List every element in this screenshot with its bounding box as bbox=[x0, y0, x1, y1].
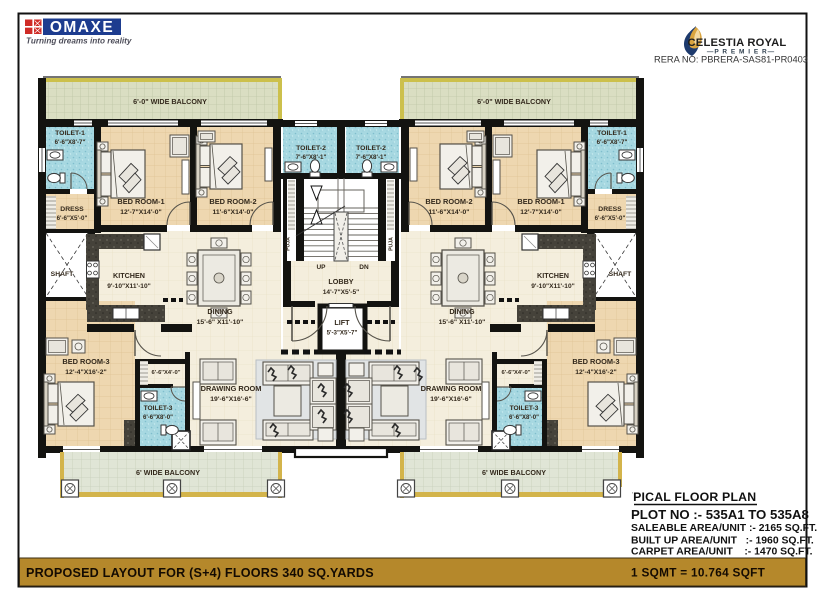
svg-text:BED ROOM-3: BED ROOM-3 bbox=[572, 357, 619, 366]
svg-text:TYPICAL FLOOR PLAN: TYPICAL FLOOR PLAN bbox=[617, 490, 756, 504]
svg-text:6'-6"X8'-0": 6'-6"X8'-0" bbox=[143, 415, 173, 421]
svg-text:TOILET-1: TOILET-1 bbox=[55, 130, 85, 137]
svg-text:TOILET-2: TOILET-2 bbox=[356, 145, 386, 152]
svg-text:BED ROOM-3: BED ROOM-3 bbox=[62, 357, 109, 366]
svg-text:14'-7"X5'-5": 14'-7"X5'-5" bbox=[323, 289, 360, 296]
svg-text:BED ROOM-2: BED ROOM-2 bbox=[209, 197, 256, 206]
svg-text:PUJA: PUJA bbox=[389, 237, 395, 251]
svg-text:7'-6"X8'-1": 7'-6"X8'-1" bbox=[356, 154, 387, 161]
svg-text:12'-4"X16'-2": 12'-4"X16'-2" bbox=[575, 369, 616, 376]
svg-text:TOILET-3: TOILET-3 bbox=[510, 405, 539, 412]
svg-text:DINING: DINING bbox=[449, 307, 475, 316]
svg-text:CARPET AREA/UNIT :- 1470 SQ: CARPET AREA/UNIT :- 1470 SQ.FT. bbox=[631, 547, 813, 558]
svg-text:LOBBY: LOBBY bbox=[328, 277, 353, 286]
svg-text:TOILET-2: TOILET-2 bbox=[296, 145, 326, 152]
svg-text:PLOT NO :- 535A1 TO 535A8: PLOT NO :- 535A1 TO 535A8 bbox=[631, 507, 809, 522]
svg-text:6'-6''X4'-0'': 6'-6''X4'-0'' bbox=[502, 370, 532, 376]
svg-text:OMAXE: OMAXE bbox=[50, 19, 114, 36]
svg-text:11'-6"X14'-0": 11'-6"X14'-0" bbox=[428, 209, 469, 216]
svg-text:BED ROOM-1: BED ROOM-1 bbox=[517, 197, 564, 206]
svg-text:12'-7"X14'-0": 12'-7"X14'-0" bbox=[520, 209, 561, 216]
svg-text:DRESS: DRESS bbox=[60, 206, 84, 213]
svg-text:SHAFT: SHAFT bbox=[609, 271, 633, 278]
svg-text:RERA NO: PBRERA-SAS81-PR0403: RERA NO: PBRERA-SAS81-PR0403 bbox=[654, 55, 808, 65]
svg-text:SALEABLE AREA/UNIT :- 2165 SQ.: SALEABLE AREA/UNIT :- 2165 SQ.FT. bbox=[631, 523, 817, 534]
svg-text:DRESS: DRESS bbox=[598, 206, 622, 213]
svg-text:BUILT UP AREA/UNIT :- 1960 S: BUILT UP AREA/UNIT :- 1960 SQ.FT. bbox=[631, 536, 814, 547]
svg-text:PROPOSED LAYOUT FOR (S+4) FLOO: PROPOSED LAYOUT FOR (S+4) FLOORS 340 SQ.… bbox=[26, 566, 374, 580]
svg-text:9'-10"X11'-10": 9'-10"X11'-10" bbox=[531, 283, 574, 290]
svg-text:BED ROOM-1: BED ROOM-1 bbox=[117, 197, 164, 206]
svg-text:5'-3"X5'-7": 5'-3"X5'-7" bbox=[327, 330, 358, 337]
svg-text:DRAWING ROOM: DRAWING ROOM bbox=[201, 384, 262, 393]
svg-text:6' WIDE BALCONY: 6' WIDE BALCONY bbox=[482, 468, 546, 477]
svg-text:6'-0" WIDE BALCONY: 6'-0" WIDE BALCONY bbox=[477, 97, 551, 106]
svg-text:6'-6"X5'-0": 6'-6"X5'-0" bbox=[595, 215, 626, 222]
svg-text:Turning dreams into reality: Turning dreams into reality bbox=[26, 37, 132, 46]
svg-text:19'-6"X16'-6": 19'-6"X16'-6" bbox=[210, 396, 251, 403]
svg-text:6'-6"X8'-7": 6'-6"X8'-7" bbox=[55, 139, 86, 146]
svg-text:7'-6"X8'-1": 7'-6"X8'-1" bbox=[296, 154, 327, 161]
svg-text:11'-6"X14'-0": 11'-6"X14'-0" bbox=[212, 209, 253, 216]
svg-text:6'-6"X8'-0": 6'-6"X8'-0" bbox=[509, 415, 539, 421]
svg-text:DN: DN bbox=[359, 264, 369, 271]
svg-text:6'-6"X5'-0": 6'-6"X5'-0" bbox=[57, 215, 88, 222]
svg-text:SHAFT: SHAFT bbox=[51, 271, 75, 278]
svg-text:UP: UP bbox=[316, 264, 326, 271]
svg-text:LIFT: LIFT bbox=[334, 318, 350, 327]
svg-text:6'-6''X4'-0'': 6'-6''X4'-0'' bbox=[152, 370, 182, 376]
svg-text:KITCHEN: KITCHEN bbox=[113, 271, 145, 280]
svg-text:BED ROOM-2: BED ROOM-2 bbox=[425, 197, 472, 206]
svg-text:12'-7"X14'-0": 12'-7"X14'-0" bbox=[120, 209, 161, 216]
svg-text:12'-4"X16'-2": 12'-4"X16'-2" bbox=[65, 369, 106, 376]
svg-text:15'-6" X11'-10": 15'-6" X11'-10" bbox=[439, 319, 486, 326]
svg-text:15'-6" X11'-10": 15'-6" X11'-10" bbox=[197, 319, 244, 326]
svg-text:6' WIDE BALCONY: 6' WIDE BALCONY bbox=[136, 468, 200, 477]
svg-text:9'-10"X11'-10": 9'-10"X11'-10" bbox=[107, 283, 150, 290]
svg-text:DINING: DINING bbox=[207, 307, 233, 316]
svg-text:PUJA: PUJA bbox=[286, 237, 292, 251]
svg-text:6'-6"X8'-7": 6'-6"X8'-7" bbox=[597, 139, 628, 146]
svg-text:CELESTIA ROYAL: CELESTIA ROYAL bbox=[688, 37, 787, 49]
svg-text:TOILET-1: TOILET-1 bbox=[597, 130, 627, 137]
svg-text:TOILET-3: TOILET-3 bbox=[144, 405, 173, 412]
svg-text:KITCHEN: KITCHEN bbox=[537, 271, 569, 280]
svg-text:1 SQMT = 10.764 SQFT: 1 SQMT = 10.764 SQFT bbox=[631, 566, 766, 580]
svg-text:DRAWING ROOM: DRAWING ROOM bbox=[421, 384, 482, 393]
svg-text:19'-6"X16'-6": 19'-6"X16'-6" bbox=[430, 396, 471, 403]
svg-text:6'-0" WIDE BALCONY: 6'-0" WIDE BALCONY bbox=[133, 97, 207, 106]
